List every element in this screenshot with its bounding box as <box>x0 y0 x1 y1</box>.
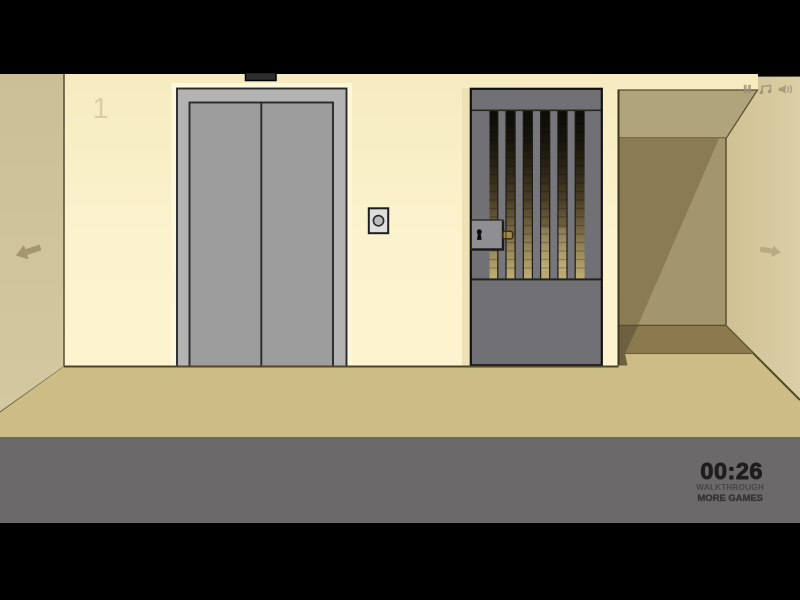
svg-text:00:26: 00:26 <box>700 458 763 484</box>
svg-text:MORE GAMES: MORE GAMES <box>697 493 763 504</box>
svg-text:WALKTHROUGH: WALKTHROUGH <box>696 483 764 492</box>
svg-text:1: 1 <box>93 93 109 125</box>
